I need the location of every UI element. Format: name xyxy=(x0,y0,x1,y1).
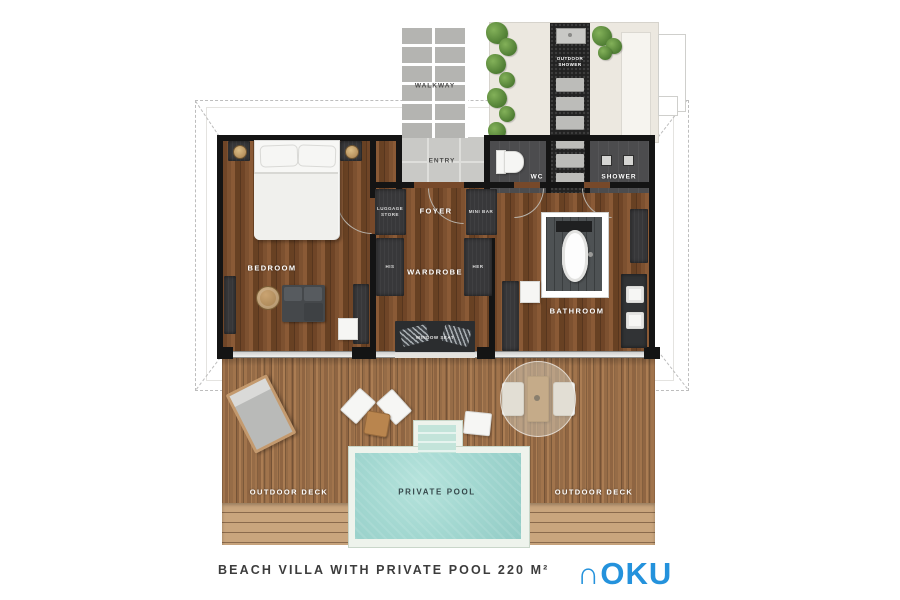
sofa-chaise xyxy=(304,303,323,321)
wall-post xyxy=(644,347,660,359)
plant-icon xyxy=(499,72,515,88)
pouf xyxy=(256,286,280,310)
stepping-stone xyxy=(556,154,584,167)
private-pool-label: PRIVATE POOL xyxy=(398,488,476,497)
walkway-label: WALKWAY xyxy=(415,83,455,90)
bathroom-label: BATHROOM xyxy=(550,307,605,316)
wardrobe-his-label: HIS xyxy=(385,264,394,270)
bathroom-bench xyxy=(520,281,540,303)
floor-plan-canvas: WALKWAY ENTRY OUTDOOR SHOWER WC SHOWER F… xyxy=(0,0,900,600)
plant-icon xyxy=(499,38,517,56)
parasol-pole xyxy=(534,395,540,401)
bed-pillow xyxy=(298,144,337,167)
pool-towel xyxy=(463,411,492,437)
shower-drain-icon xyxy=(568,33,572,37)
wall-left xyxy=(217,135,223,358)
plant-icon xyxy=(487,88,507,108)
plant-icon xyxy=(499,106,515,122)
window-seat-label: WINDOW SEAT xyxy=(416,335,454,341)
bathroom-tall-cabinet xyxy=(502,281,519,351)
wall-post xyxy=(477,347,495,359)
luggage-store-label: LUGGAGE STORE xyxy=(377,206,403,218)
wall-post xyxy=(217,347,233,359)
wardrobe-label: WARDROBE xyxy=(407,268,463,277)
outdoor-shower-label: OUTDOOR SHOWER xyxy=(551,56,589,68)
stepping-stone xyxy=(556,78,584,91)
window-seat-threshold xyxy=(395,353,475,358)
mini-bar-label: MINI BAR xyxy=(468,209,494,215)
deck-steps-right xyxy=(521,503,655,545)
courtyard-mat xyxy=(621,32,651,140)
sofa-cushion xyxy=(304,287,322,301)
pool-entry-steps xyxy=(418,425,456,455)
wall-top-wetrooms xyxy=(484,135,655,141)
wardrobe-her-label: HER xyxy=(472,264,483,270)
wall-post xyxy=(352,347,376,359)
shower-label: SHOWER xyxy=(601,174,636,181)
building-shadow xyxy=(222,357,655,366)
wc-label: WC xyxy=(531,174,544,181)
noku-logo: ∩OKU xyxy=(577,556,672,592)
outdoor-deck-right-label: OUTDOOR DECK xyxy=(555,488,633,497)
stepping-stone xyxy=(556,97,584,110)
bedroom-console xyxy=(224,276,236,334)
sofa-cushion xyxy=(284,287,302,301)
sink-icon xyxy=(626,286,644,303)
stepping-stone xyxy=(556,116,584,129)
towel-cabinet xyxy=(630,209,648,263)
plant-icon xyxy=(598,46,612,60)
toilet-icon xyxy=(504,151,524,173)
sink-icon xyxy=(626,312,644,329)
bed-duvet xyxy=(254,172,338,240)
bathtub xyxy=(562,230,588,282)
side-table xyxy=(363,410,391,438)
bedroom-stool xyxy=(338,318,358,340)
outdoor-deck-left-label: OUTDOOR DECK xyxy=(250,488,328,497)
bed-pillow xyxy=(260,144,299,167)
tub-faucet-icon xyxy=(588,252,593,257)
lamp-icon xyxy=(233,145,247,159)
shower-head-icon xyxy=(623,155,634,166)
lamp-icon xyxy=(345,145,359,159)
foyer-label: FOYER xyxy=(420,207,453,216)
entry-label: ENTRY xyxy=(429,158,456,165)
wall-right xyxy=(649,135,655,358)
plant-icon xyxy=(486,54,506,74)
plan-title: BEACH VILLA WITH PRIVATE POOL 220 M² xyxy=(218,563,549,577)
bedroom-label: BEDROOM xyxy=(248,264,297,273)
shower-head-icon xyxy=(601,155,612,166)
side-structure-step xyxy=(658,96,678,116)
